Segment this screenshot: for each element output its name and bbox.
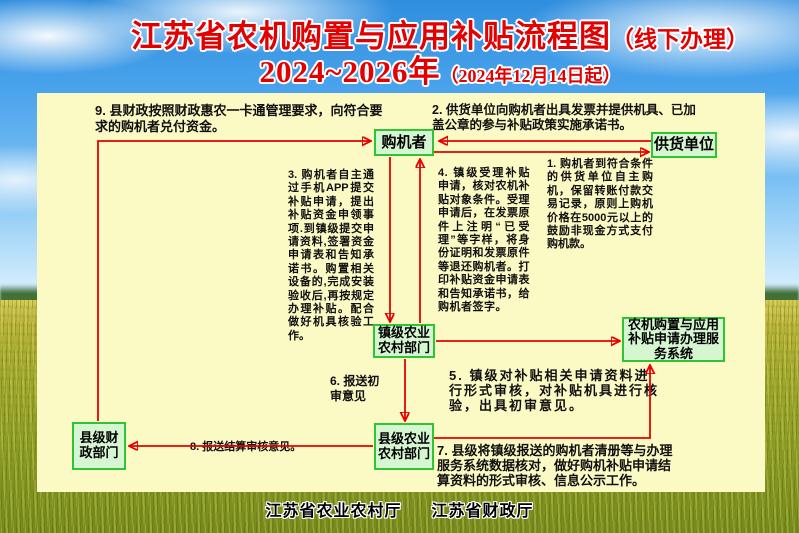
step9-text: 9. 县财政按照财政惠农一卡通管理要求，向符合要求的购机者兑付资金。 xyxy=(95,103,387,135)
footer-org-finance: 江苏省财政厅 xyxy=(432,503,534,520)
node-purchaser: 购机者 xyxy=(374,129,434,156)
title-effective-date: （2024年12月14日起） xyxy=(441,66,621,86)
node-supplier: 供货单位 xyxy=(651,132,717,158)
node-town-ag-dept: 镇级农业农村部门 xyxy=(373,324,435,358)
title-years: 2024~2026年 xyxy=(259,54,440,89)
title-line2: 2024~2026年（2024年12月14日起） xyxy=(85,55,795,89)
step2-text: 2. 供货单位向购机者出具发票并提供机具、已加盖公章的参与补贴政策实施承诺书。 xyxy=(432,103,704,134)
title-main: 江苏省农机购置与应用补贴流程图 xyxy=(131,19,611,54)
title-line1: 江苏省农机购置与应用补贴流程图（线下办理） xyxy=(85,20,795,54)
step6-text: 6. 报送初审意见 xyxy=(330,374,386,403)
step4-text: 4. 镇级受理补贴申请，核对农机补贴对象条件。受理申请后，在发票原件上注明“已受… xyxy=(438,167,530,314)
node-county-finance-dept: 县级财政部门 xyxy=(72,422,126,470)
step8-text: 8. 报送结算审核意见。 xyxy=(190,441,315,454)
step7-text: 7. 县级将镇级报送的购机者清册等与办理服务系统数据核对，做好购机补贴申请结算资… xyxy=(437,444,681,488)
step3-text: 3. 购机者自主通过手机APP提交补贴申请，提出补贴资金申领事项.到镇级提交申请… xyxy=(288,169,374,343)
footer-credits: 江苏省农业农村厅江苏省财政厅 xyxy=(0,497,799,521)
step5-text: 5. 镇级对补贴相关申请资料进行形式审核，对补贴机具进行核验，出具初审意见。 xyxy=(449,369,661,414)
step1-text: 1. 购机者到符合条件的供货单位自主购机，保留转账付款交易记录，原则上购机价格在… xyxy=(547,158,653,252)
title-offline-note: （线下办理） xyxy=(611,27,749,52)
poster: 江苏省农机购置与应用补贴流程图（线下办理） 2024~2026年（2024年12… xyxy=(0,0,799,533)
node-county-ag-dept: 县级农业农村部门 xyxy=(374,423,434,470)
poster-title: 江苏省农机购置与应用补贴流程图（线下办理） 2024~2026年（2024年12… xyxy=(85,20,795,89)
footer-org-agriculture: 江苏省农业农村厅 xyxy=(265,503,401,520)
node-service-system: 农机购置与应用补贴申请办理服务系统 xyxy=(622,317,725,362)
